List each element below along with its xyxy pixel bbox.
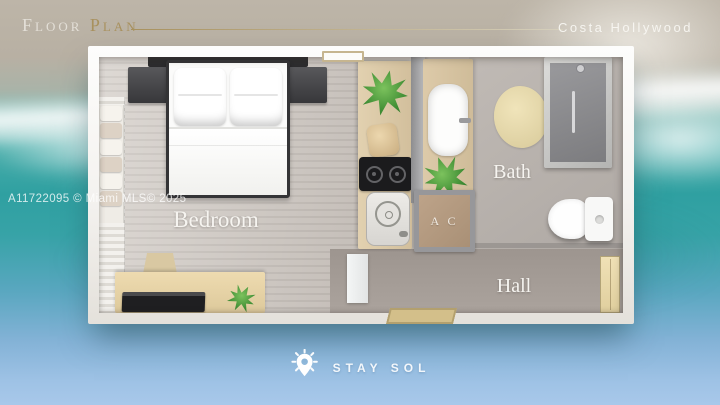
brand-lockup: STAY SOL xyxy=(290,349,431,386)
bed-duvet xyxy=(169,127,287,195)
closet-towel-shelf xyxy=(99,105,124,223)
bath-threshold xyxy=(471,243,623,248)
towel xyxy=(100,174,122,189)
mls-watermark: A11722095 © Miami MLS© 2025 xyxy=(8,193,186,205)
floor-plan: A C Bedroom Bath Hall xyxy=(88,46,634,324)
property-name: Costa Hollywood xyxy=(558,20,693,35)
vanity-sink xyxy=(428,84,468,156)
page-title-floor: Floor xyxy=(22,15,82,35)
burner-icon xyxy=(389,166,406,183)
cooktop xyxy=(359,157,412,191)
nightstand-left xyxy=(128,67,168,103)
hall-floor xyxy=(330,249,623,313)
burner-icon xyxy=(366,166,383,183)
shower-basin xyxy=(550,63,606,162)
bedroom-label: Bedroom xyxy=(156,207,276,233)
storage-basket xyxy=(366,122,400,158)
tv-console xyxy=(122,292,206,312)
ac-closet: A C xyxy=(414,190,475,252)
window xyxy=(322,51,364,62)
brand-name: STAY SOL xyxy=(333,361,431,375)
pillow-right xyxy=(230,68,282,126)
bath-label: Bath xyxy=(477,161,547,184)
shower-head-icon xyxy=(576,64,585,73)
pillow-left xyxy=(174,68,226,126)
shower-door-handle xyxy=(572,91,575,133)
towel xyxy=(100,123,122,138)
page-title: Floor Plan xyxy=(22,15,139,36)
kitchen-sink xyxy=(366,192,410,246)
shower xyxy=(544,57,612,168)
entry-door xyxy=(600,256,620,313)
double-bed xyxy=(166,60,290,198)
sun-location-pin-icon xyxy=(290,349,320,386)
towel xyxy=(100,157,122,172)
toilet-tank xyxy=(585,197,613,241)
header-divider-line xyxy=(131,29,563,30)
sink-basin xyxy=(375,201,401,227)
ac-closet-label: A C xyxy=(430,214,458,229)
faucet-icon xyxy=(399,231,408,237)
nightstand-right xyxy=(287,67,327,103)
floor-plan-interior: A C Bedroom Bath Hall xyxy=(99,57,623,313)
hall-label: Hall xyxy=(479,275,549,298)
towel xyxy=(100,140,122,155)
ac-closet-inner: A C xyxy=(419,195,470,247)
interior-door xyxy=(347,254,368,303)
towel xyxy=(100,106,122,121)
page-title-plan: Plan xyxy=(90,15,139,35)
floor-plan-page: Floor Plan Costa Hollywood A11722095 © M… xyxy=(0,0,720,405)
entry-mat xyxy=(386,308,457,324)
